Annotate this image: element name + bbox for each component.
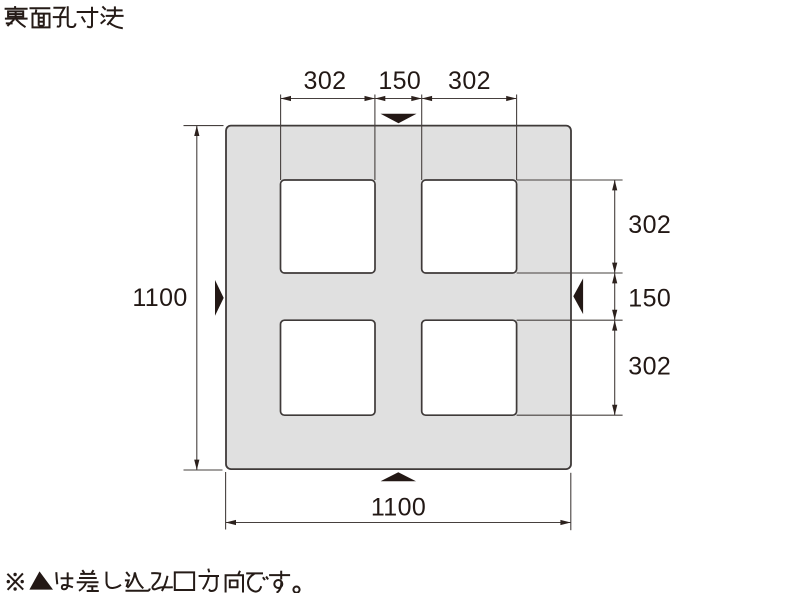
svg-text:1100: 1100 <box>371 494 426 522</box>
svg-text:150: 150 <box>378 67 421 95</box>
svg-text:150: 150 <box>628 285 671 313</box>
svg-text:302: 302 <box>628 352 671 380</box>
svg-text:302: 302 <box>304 67 347 95</box>
svg-text:302: 302 <box>448 67 491 95</box>
svg-text:1100: 1100 <box>132 284 187 312</box>
svg-text:302: 302 <box>628 211 671 239</box>
